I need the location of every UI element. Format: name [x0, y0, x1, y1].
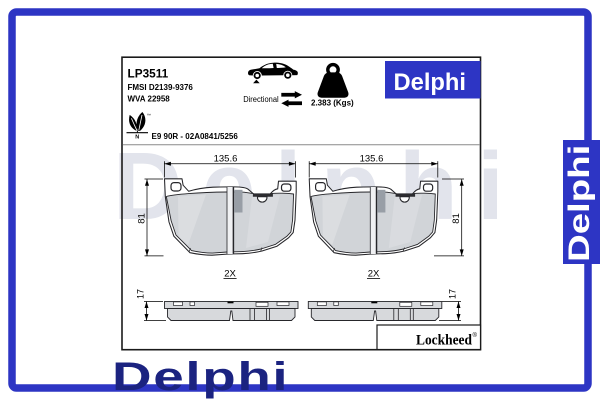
svg-text:135.6: 135.6: [360, 154, 384, 165]
svg-text:™: ™: [147, 113, 151, 118]
svg-text:WVA 22958: WVA 22958: [128, 94, 171, 103]
svg-text:2X: 2X: [224, 269, 236, 280]
svg-text:17: 17: [448, 289, 458, 299]
svg-text:2X: 2X: [368, 269, 380, 280]
svg-text:®: ®: [473, 332, 478, 339]
svg-text:FMSI D2139-9376: FMSI D2139-9376: [128, 83, 194, 92]
svg-text:Delphi: Delphi: [563, 145, 596, 262]
svg-text:E9 90R - 02A0841/5256: E9 90R - 02A0841/5256: [152, 132, 239, 141]
svg-text:Directional: Directional: [243, 95, 279, 104]
svg-text:17: 17: [136, 289, 146, 299]
svg-text:LP3511: LP3511: [128, 67, 169, 81]
svg-text:2.383 (Kgs): 2.383 (Kgs): [311, 99, 354, 108]
svg-text:135.6: 135.6: [214, 154, 238, 165]
svg-text:Delphi: Delphi: [112, 355, 289, 399]
svg-text:81: 81: [451, 213, 462, 224]
svg-text:Lockheed: Lockheed: [416, 333, 472, 349]
svg-text:81: 81: [137, 213, 148, 224]
svg-text:N: N: [135, 135, 139, 141]
svg-text:Delphi: Delphi: [394, 69, 467, 96]
